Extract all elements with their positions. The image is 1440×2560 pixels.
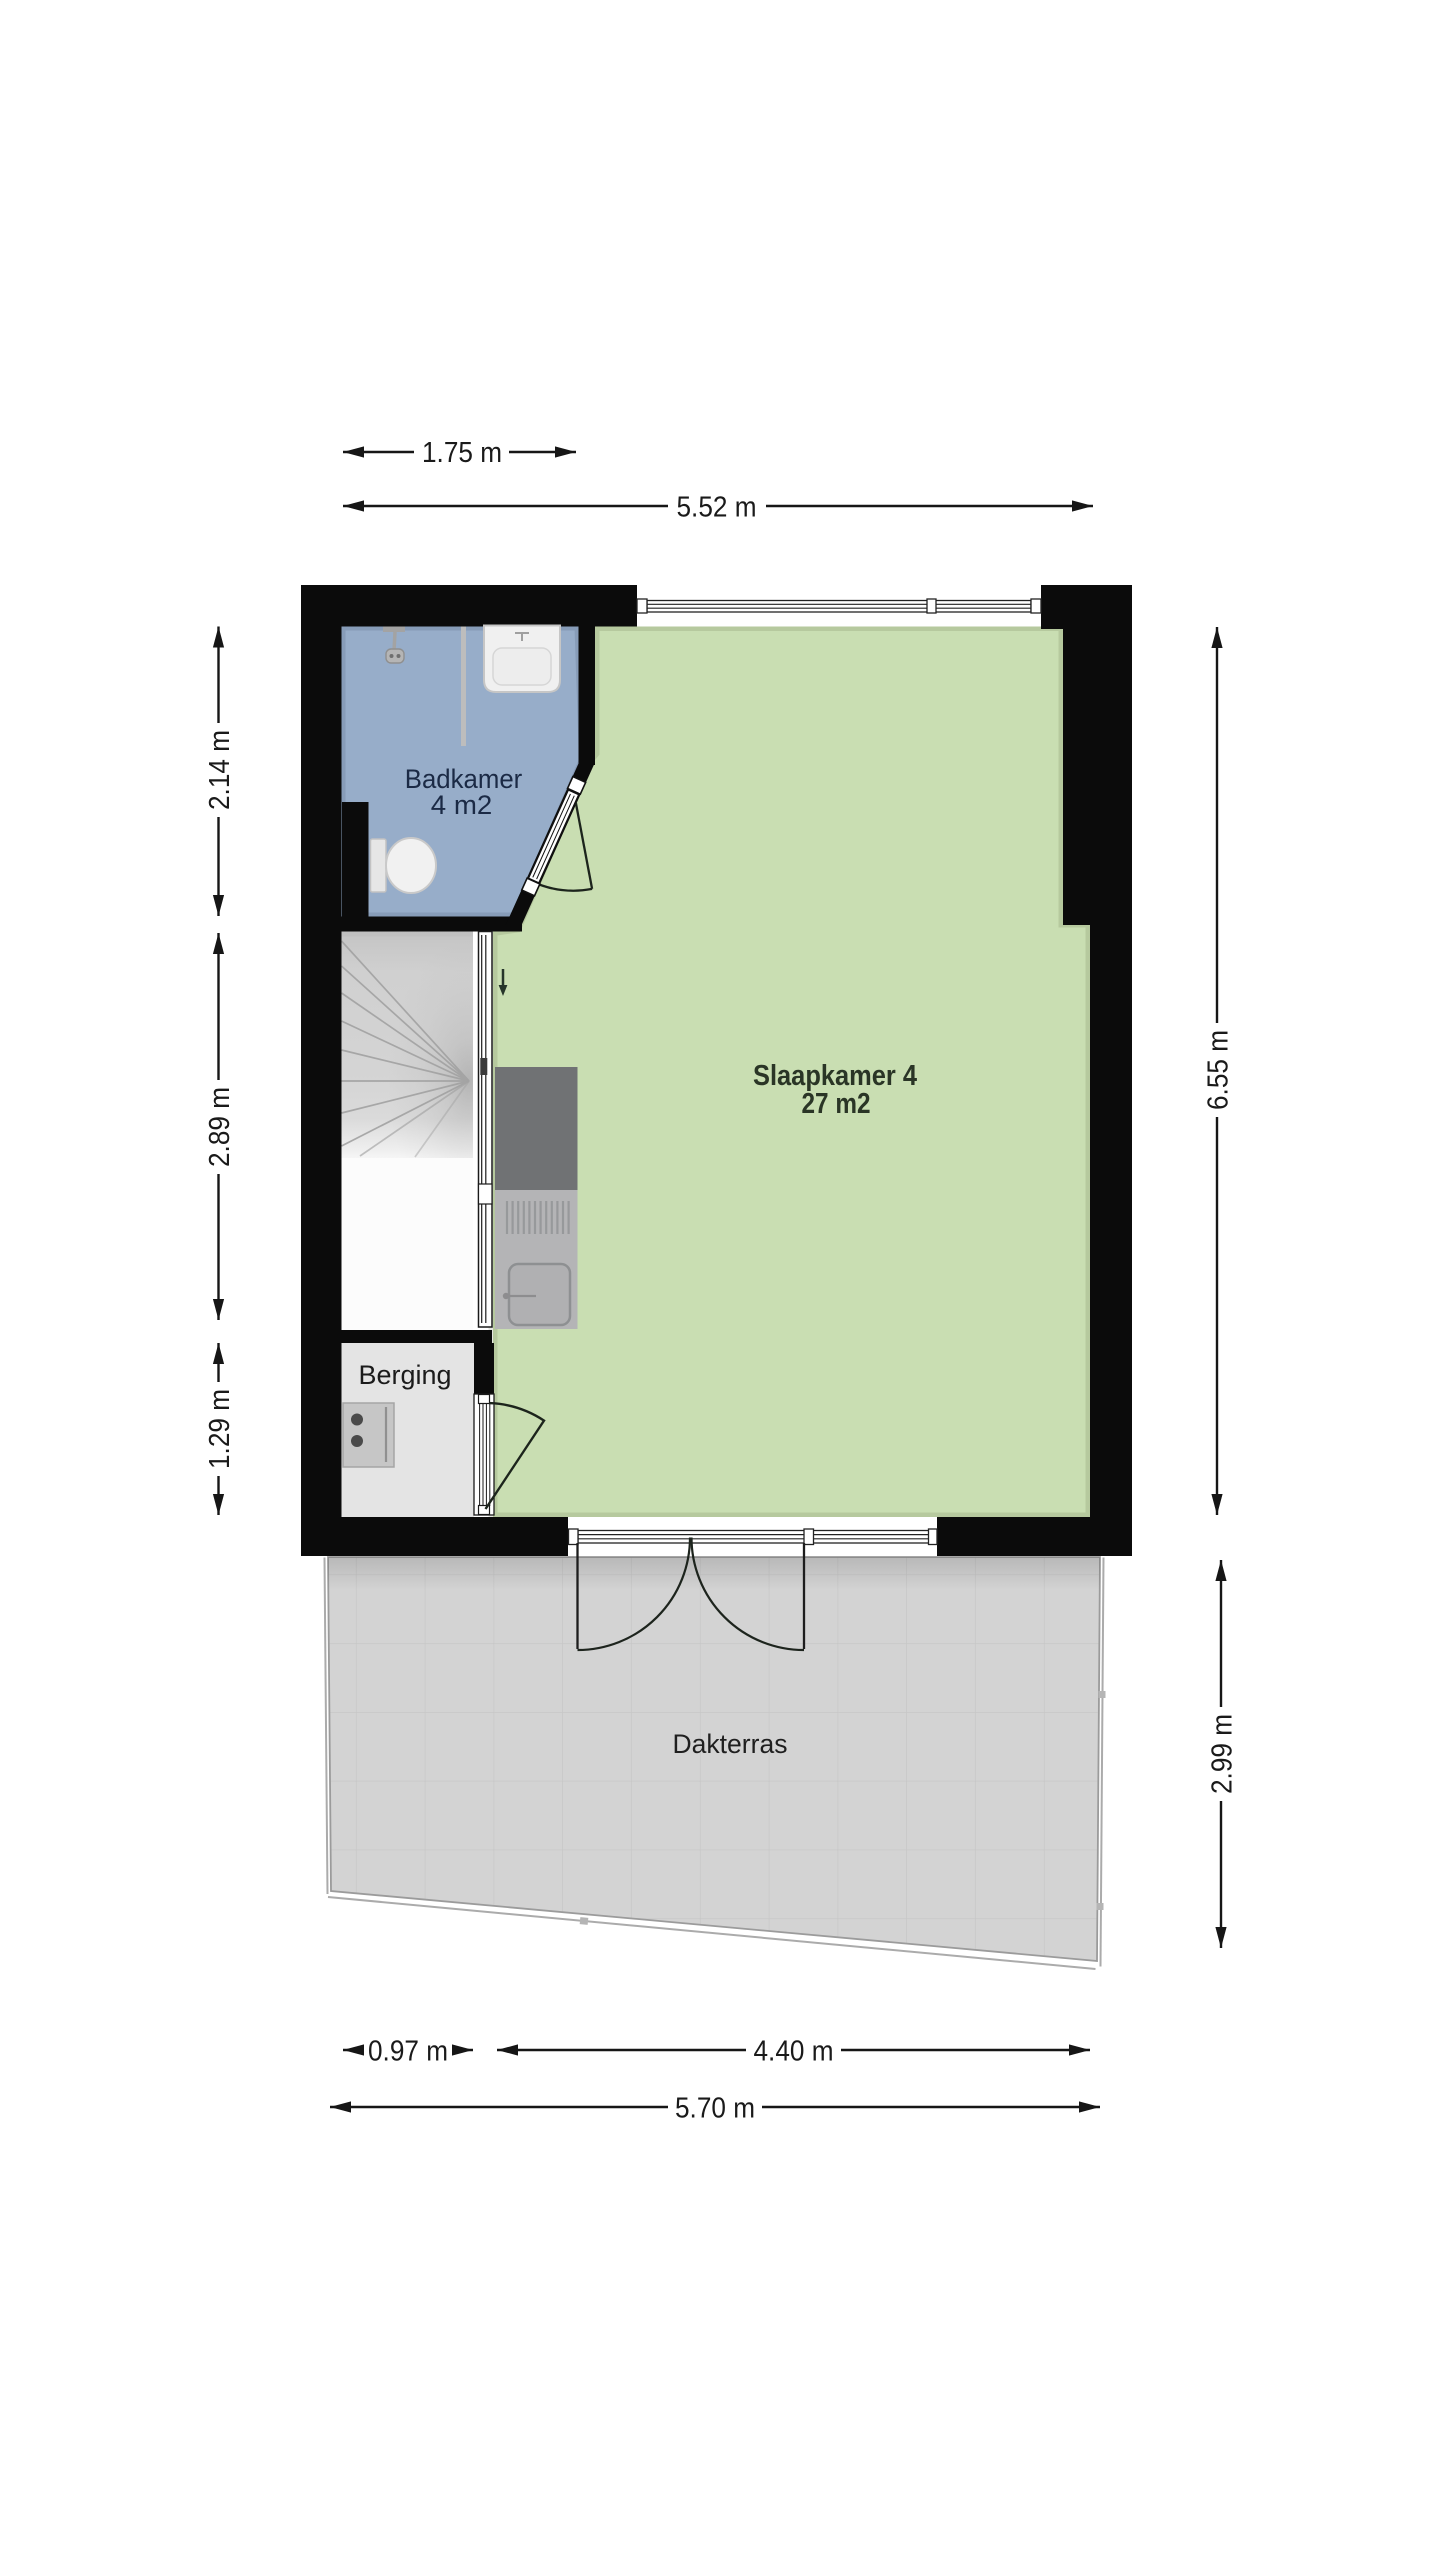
svg-text:Berging: Berging — [359, 1360, 452, 1390]
svg-text:0.97 m: 0.97 m — [368, 2036, 448, 2068]
svg-text:Dakterras: Dakterras — [673, 1729, 788, 1759]
svg-text:27 m2: 27 m2 — [802, 1088, 871, 1120]
svg-text:5.70 m: 5.70 m — [675, 2093, 755, 2125]
svg-text:1.29 m: 1.29 m — [204, 1389, 236, 1469]
svg-text:2.14 m: 2.14 m — [204, 730, 236, 810]
svg-text:5.52 m: 5.52 m — [677, 492, 757, 524]
svg-text:1.75 m: 1.75 m — [422, 437, 502, 469]
svg-text:4 m2: 4 m2 — [431, 790, 493, 820]
svg-text:4.40 m: 4.40 m — [754, 2036, 834, 2068]
svg-text:2.99 m: 2.99 m — [1207, 1714, 1239, 1794]
svg-text:6.55 m: 6.55 m — [1203, 1030, 1235, 1110]
svg-text:2.89 m: 2.89 m — [204, 1087, 236, 1167]
